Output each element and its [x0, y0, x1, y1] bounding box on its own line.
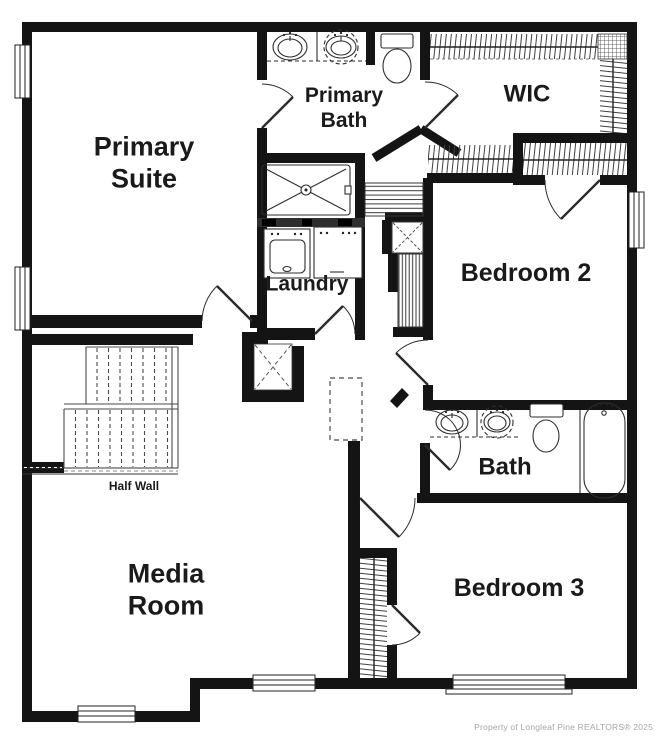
wic-shelf-crosshatch	[598, 34, 627, 59]
main-staircase	[22, 347, 178, 474]
room-label-media-room: Media Room	[128, 558, 205, 623]
door-bedroom3-entry	[360, 498, 415, 537]
sink-icon	[324, 30, 358, 64]
bath-toilet-icon	[530, 404, 563, 452]
half-wall-label: Half Wall	[109, 479, 159, 493]
primary-toilet-icon	[381, 34, 413, 83]
window-bottom-hall	[253, 675, 315, 691]
window-bottom-media	[78, 706, 135, 722]
room-label-wic: WIC	[504, 81, 551, 110]
room-label-primary-suite: Primary Suite	[94, 131, 195, 196]
laundry-appliances	[257, 218, 365, 278]
window-bottom-bedroom3	[446, 675, 572, 694]
door-primary-suite-entry	[202, 286, 252, 321]
copyright-text: Property of Longleaf Pine REALTORS® 2025	[474, 722, 653, 732]
dryer-icon	[314, 227, 362, 278]
window-left-mid	[15, 267, 30, 330]
shower-icon	[262, 165, 351, 215]
primary-bath-vanity	[267, 30, 366, 64]
room-label-primary-bath: Primary Bath	[305, 83, 383, 133]
sink-icon	[481, 406, 513, 438]
room-label-bath: Bath	[478, 454, 531, 483]
door-bedroom2-closet	[545, 180, 600, 219]
room-label-bedroom2: Bedroom 2	[461, 258, 592, 288]
bedroom3-closet-rod	[360, 558, 387, 678]
door-primary-suite-to-bath	[262, 84, 293, 128]
upper-stair-landing	[365, 183, 423, 216]
bath-vanity	[430, 406, 518, 438]
angled-wall-stub	[390, 388, 409, 408]
door-primary-bath-to-wic	[425, 82, 458, 128]
sink-icon	[273, 32, 307, 60]
bathtub-icon	[580, 403, 625, 498]
hall-closet	[254, 344, 292, 390]
window-left-top	[15, 45, 30, 98]
bedroom2-closet-rod	[523, 143, 627, 175]
floor-plan: Primary Suite Primary Bath WIC Bedroom 2…	[0, 0, 659, 737]
window-right-bedroom2	[629, 192, 644, 248]
attic-access-panel	[330, 378, 362, 440]
room-label-laundry: Laundry	[266, 271, 349, 296]
stair-flight-strip	[398, 254, 423, 327]
door-bedroom3-closet	[392, 605, 420, 645]
door-laundry	[315, 306, 355, 334]
door-bedroom2-entry	[396, 340, 428, 385]
room-label-bedroom3: Bedroom 3	[454, 573, 585, 603]
